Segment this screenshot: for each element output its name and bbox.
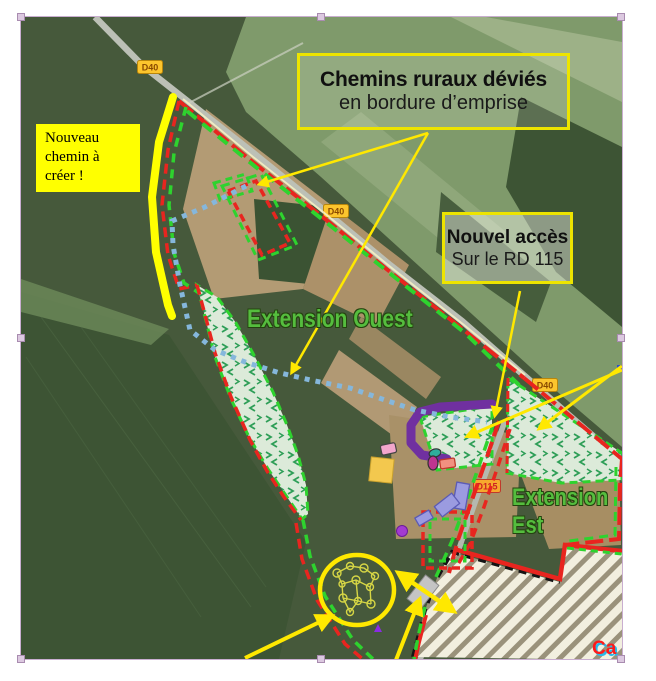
rural-paths-title: Chemins ruraux déviés [320, 68, 547, 92]
selection-handle-bottom-right[interactable] [617, 655, 625, 663]
selection-handle-mid-right[interactable] [617, 334, 625, 342]
feature-purple-dot [397, 526, 408, 537]
new-access-subtitle: Sur le RD 115 [452, 249, 564, 270]
rural-paths-callout: Chemins ruraux déviés en bordure d’empri… [297, 53, 570, 130]
slide-canvas: { "map": { "road_badges": [ {"id": "d40-… [0, 0, 656, 681]
rural-paths-subtitle: en bordure d’emprise [339, 92, 528, 115]
new-path-note: Nouveau chemin à créer ! [36, 124, 140, 192]
quarry-label-clipped: Ca [592, 638, 616, 659]
selection-handle-top-right[interactable] [617, 13, 625, 21]
new-access-title: Nouvel accès [447, 227, 568, 249]
new-access-callout: Nouvel accès Sur le RD 115 [442, 212, 573, 284]
selection-handle-bottom-mid[interactable] [317, 655, 325, 663]
feature-magenta [428, 456, 438, 470]
svg-text:D115: D115 [476, 482, 497, 492]
road-badge-d40-north: D40 [138, 61, 163, 74]
svg-text:D40: D40 [328, 207, 345, 217]
building-yellow [369, 457, 394, 483]
selection-handle-bottom-left[interactable] [17, 655, 25, 663]
svg-text:D40: D40 [537, 381, 554, 391]
extension-east-label: Extension Est [512, 484, 608, 539]
map-image[interactable]: D40 D40 D40 D115 [21, 17, 622, 659]
selection-handle-top-mid[interactable] [317, 13, 325, 21]
svg-text:D40: D40 [142, 63, 159, 73]
selection-handle-top-left[interactable] [17, 13, 25, 21]
selection-handle-mid-left[interactable] [17, 334, 25, 342]
extension-west-label: Extension Ouest [247, 305, 413, 334]
building-salmon [440, 458, 456, 469]
